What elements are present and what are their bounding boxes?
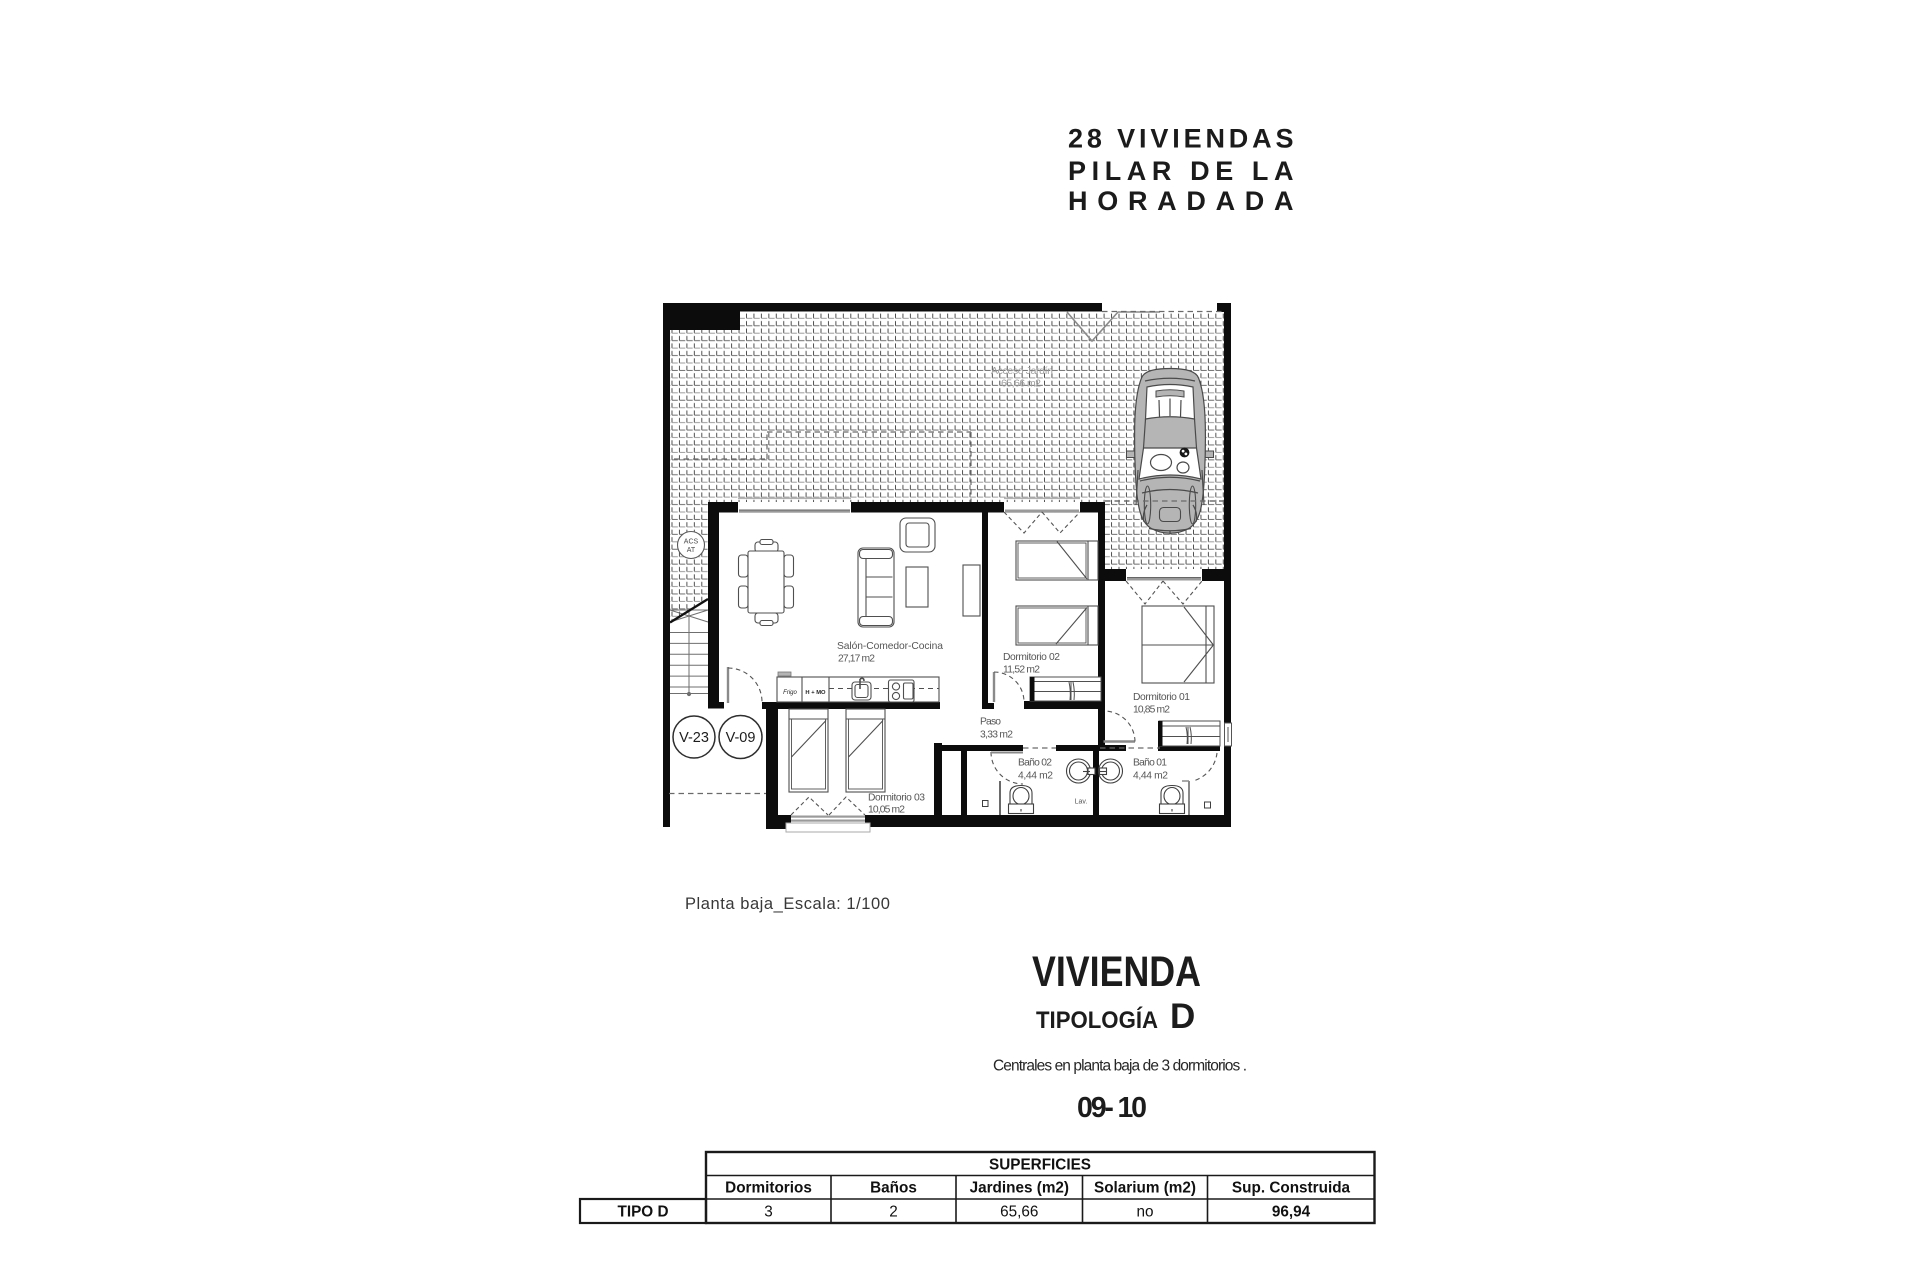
svg-text:65,66: 65,66	[1000, 1204, 1038, 1221]
svg-text:Centrales en planta baja de 3: Centrales en planta baja de 3 dormitorio…	[993, 1058, 1247, 1075]
svg-text:V-23: V-23	[679, 730, 709, 746]
svg-text:Baños: Baños	[870, 1180, 917, 1197]
svg-text:SUPERFICIES: SUPERFICIES	[989, 1157, 1091, 1174]
svg-text:no: no	[1136, 1204, 1153, 1221]
svg-text:2: 2	[889, 1204, 898, 1221]
svg-text:Sup. Construida: Sup. Construida	[1232, 1180, 1351, 1197]
svg-text:AT: AT	[687, 547, 696, 554]
svg-text:H + MO: H + MO	[805, 690, 826, 696]
svg-text:VIVIENDA: VIVIENDA	[1032, 948, 1201, 996]
svg-text:96,94: 96,94	[1272, 1204, 1311, 1221]
svg-text:Jardines (m2): Jardines (m2)	[970, 1180, 1069, 1197]
svg-text:11,52 m2: 11,52 m2	[1003, 665, 1040, 676]
svg-text:D: D	[1170, 997, 1195, 1036]
svg-text:Dormitorio 01: Dormitorio 01	[1133, 692, 1190, 703]
svg-text:10,85 m2: 10,85 m2	[1133, 705, 1170, 716]
svg-text:27,17 m2: 27,17 m2	[838, 654, 875, 665]
svg-text:Dormitorio 02: Dormitorio 02	[1003, 652, 1060, 663]
svg-text:Solarium (m2): Solarium (m2)	[1094, 1180, 1196, 1197]
svg-text:09- 10: 09- 10	[1077, 1092, 1147, 1124]
svg-text:4,44 m2: 4,44 m2	[1018, 771, 1053, 782]
svg-text:10,05 m2: 10,05 m2	[868, 805, 905, 816]
svg-text:Dormitorio 03: Dormitorio 03	[868, 793, 925, 804]
svg-text:Lav.: Lav.	[1075, 799, 1088, 806]
svg-text:Dormitorios: Dormitorios	[725, 1180, 812, 1197]
svg-text:3: 3	[764, 1204, 773, 1221]
svg-text:Planta baja_Escala: 1/100: Planta baja_Escala: 1/100	[685, 895, 890, 913]
svg-text:Baño 01: Baño 01	[1133, 758, 1167, 769]
svg-text:Baño 02: Baño 02	[1018, 758, 1052, 769]
svg-text:Acceso Jardín: Acceso Jardín	[991, 365, 1053, 377]
svg-text:TIPO D: TIPO D	[618, 1204, 669, 1221]
svg-text:ACS: ACS	[684, 539, 699, 546]
svg-text:65,66 m2: 65,66 m2	[1001, 378, 1041, 390]
svg-text:Frigo: Frigo	[783, 690, 797, 696]
svg-text:Salón-Comedor-Cocina: Salón-Comedor-Cocina	[837, 641, 943, 652]
svg-text:V-09: V-09	[726, 730, 756, 746]
svg-text:4,44 m2: 4,44 m2	[1133, 771, 1168, 782]
svg-text:Paso: Paso	[980, 717, 1001, 728]
svg-text:TIPOLOGÍA: TIPOLOGÍA	[1036, 1006, 1158, 1034]
svg-text:3,33 m2: 3,33 m2	[980, 730, 1013, 741]
